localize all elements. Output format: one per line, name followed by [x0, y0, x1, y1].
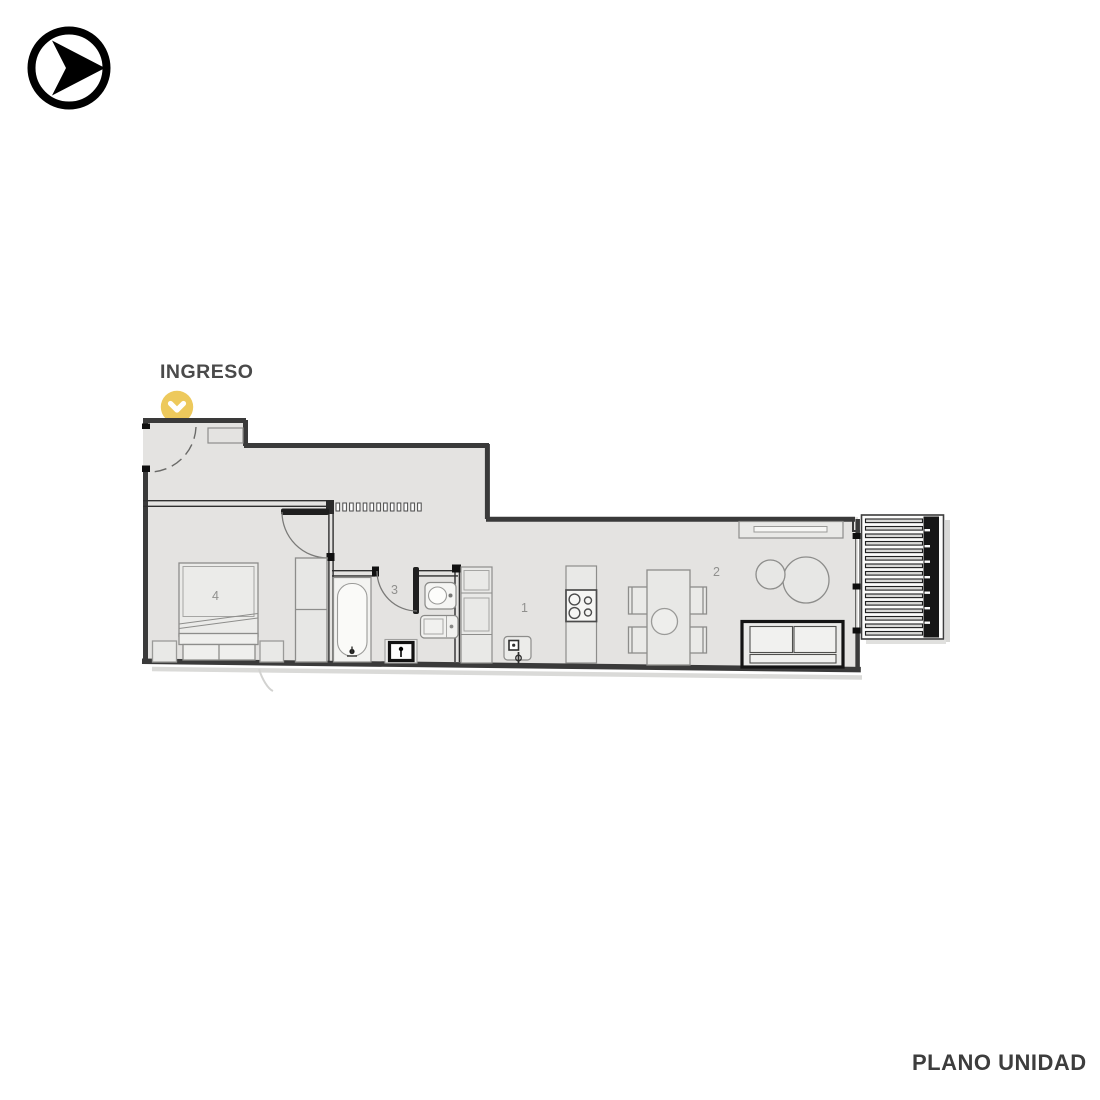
utility-box — [504, 637, 531, 665]
kitchen-counter-left — [461, 567, 492, 663]
balcony-deck — [862, 515, 944, 639]
room-label-living-dining: 2 — [713, 566, 720, 579]
bedroom-door-leaf — [281, 509, 329, 516]
coffee-table-small — [756, 560, 785, 589]
floor-plan-drawing — [0, 0, 1100, 1100]
page: INGRESO — [0, 0, 1100, 1100]
toilet — [425, 583, 456, 610]
tv-console — [739, 522, 843, 539]
room-label-kitchen: 1 — [521, 602, 528, 615]
bidet-vanity — [421, 616, 459, 639]
room-label-bathroom: 3 — [391, 584, 398, 597]
coffee-table-large — [783, 557, 829, 603]
bathroom-door-leaf — [413, 567, 419, 614]
room-label-bedroom: 4 — [212, 590, 219, 603]
sofa — [742, 622, 843, 668]
plan-title: PLANO UNIDAD — [912, 1050, 1087, 1076]
washbasin — [385, 640, 417, 664]
bathtub — [334, 578, 372, 663]
kitchen-counter-stove — [566, 566, 597, 663]
